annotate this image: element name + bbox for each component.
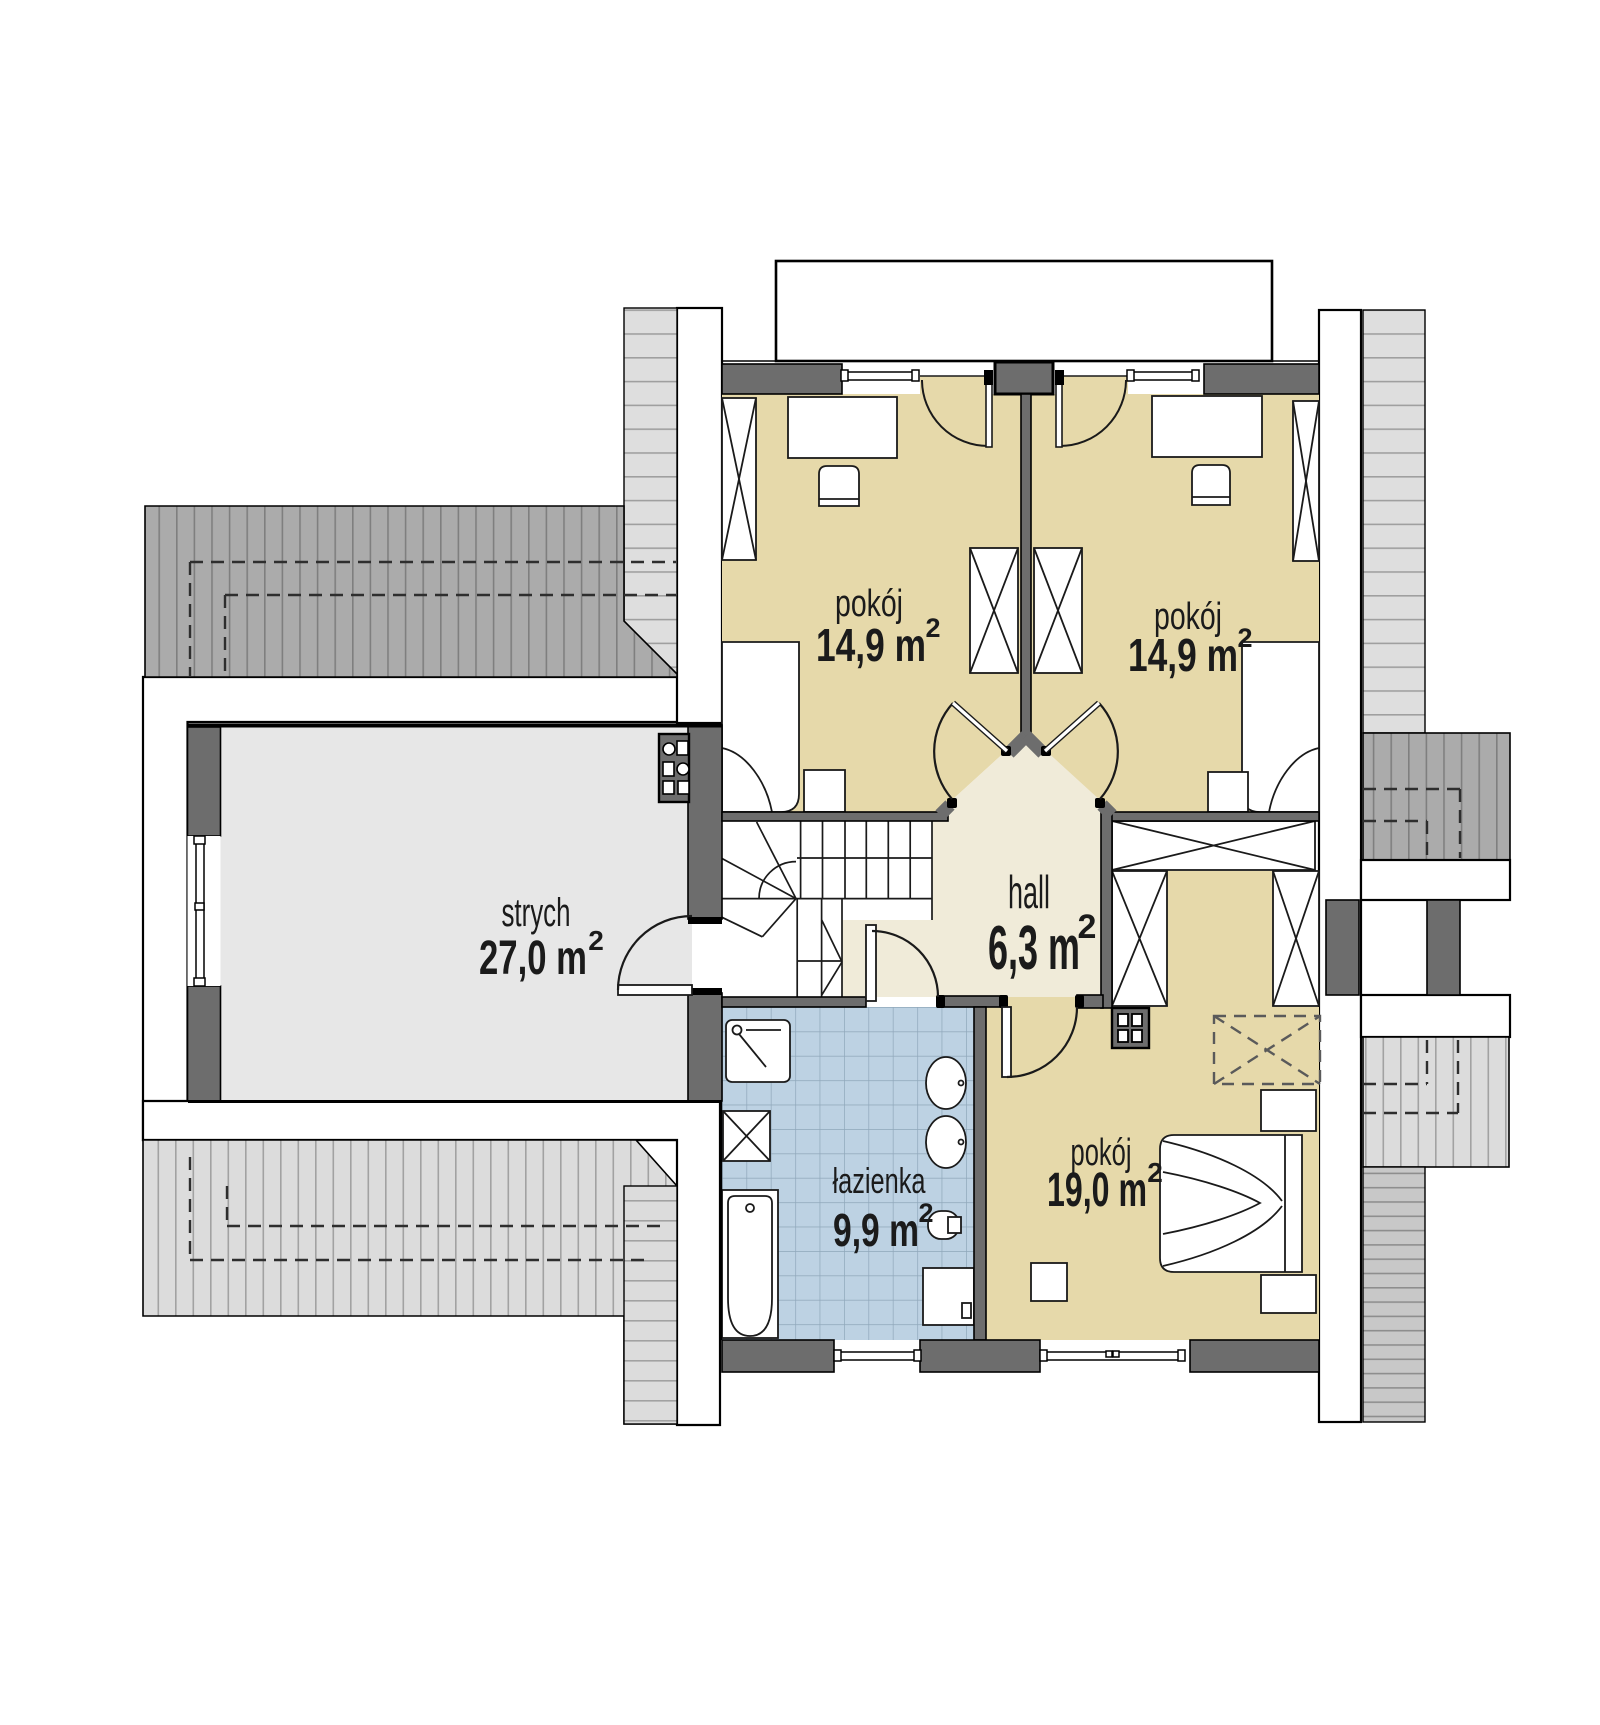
svg-text:14,9 m: 14,9 m [816,619,926,671]
svg-text:2: 2 [588,925,604,956]
svg-text:2: 2 [1237,623,1252,653]
svg-text:6,3 m: 6,3 m [988,914,1080,983]
svg-text:27,0 m: 27,0 m [479,932,587,985]
svg-text:14,9 m: 14,9 m [1128,629,1238,681]
svg-text:9,9 m: 9,9 m [833,1204,919,1256]
svg-text:hall: hall [1008,866,1050,918]
svg-text:strych: strych [502,891,571,935]
svg-text:2: 2 [918,1198,933,1228]
svg-text:19,0 m: 19,0 m [1047,1164,1147,1217]
svg-text:2: 2 [925,613,940,643]
svg-text:2: 2 [1147,1157,1163,1188]
svg-text:2: 2 [1078,908,1097,946]
svg-text:łazienka: łazienka [833,1160,927,1201]
